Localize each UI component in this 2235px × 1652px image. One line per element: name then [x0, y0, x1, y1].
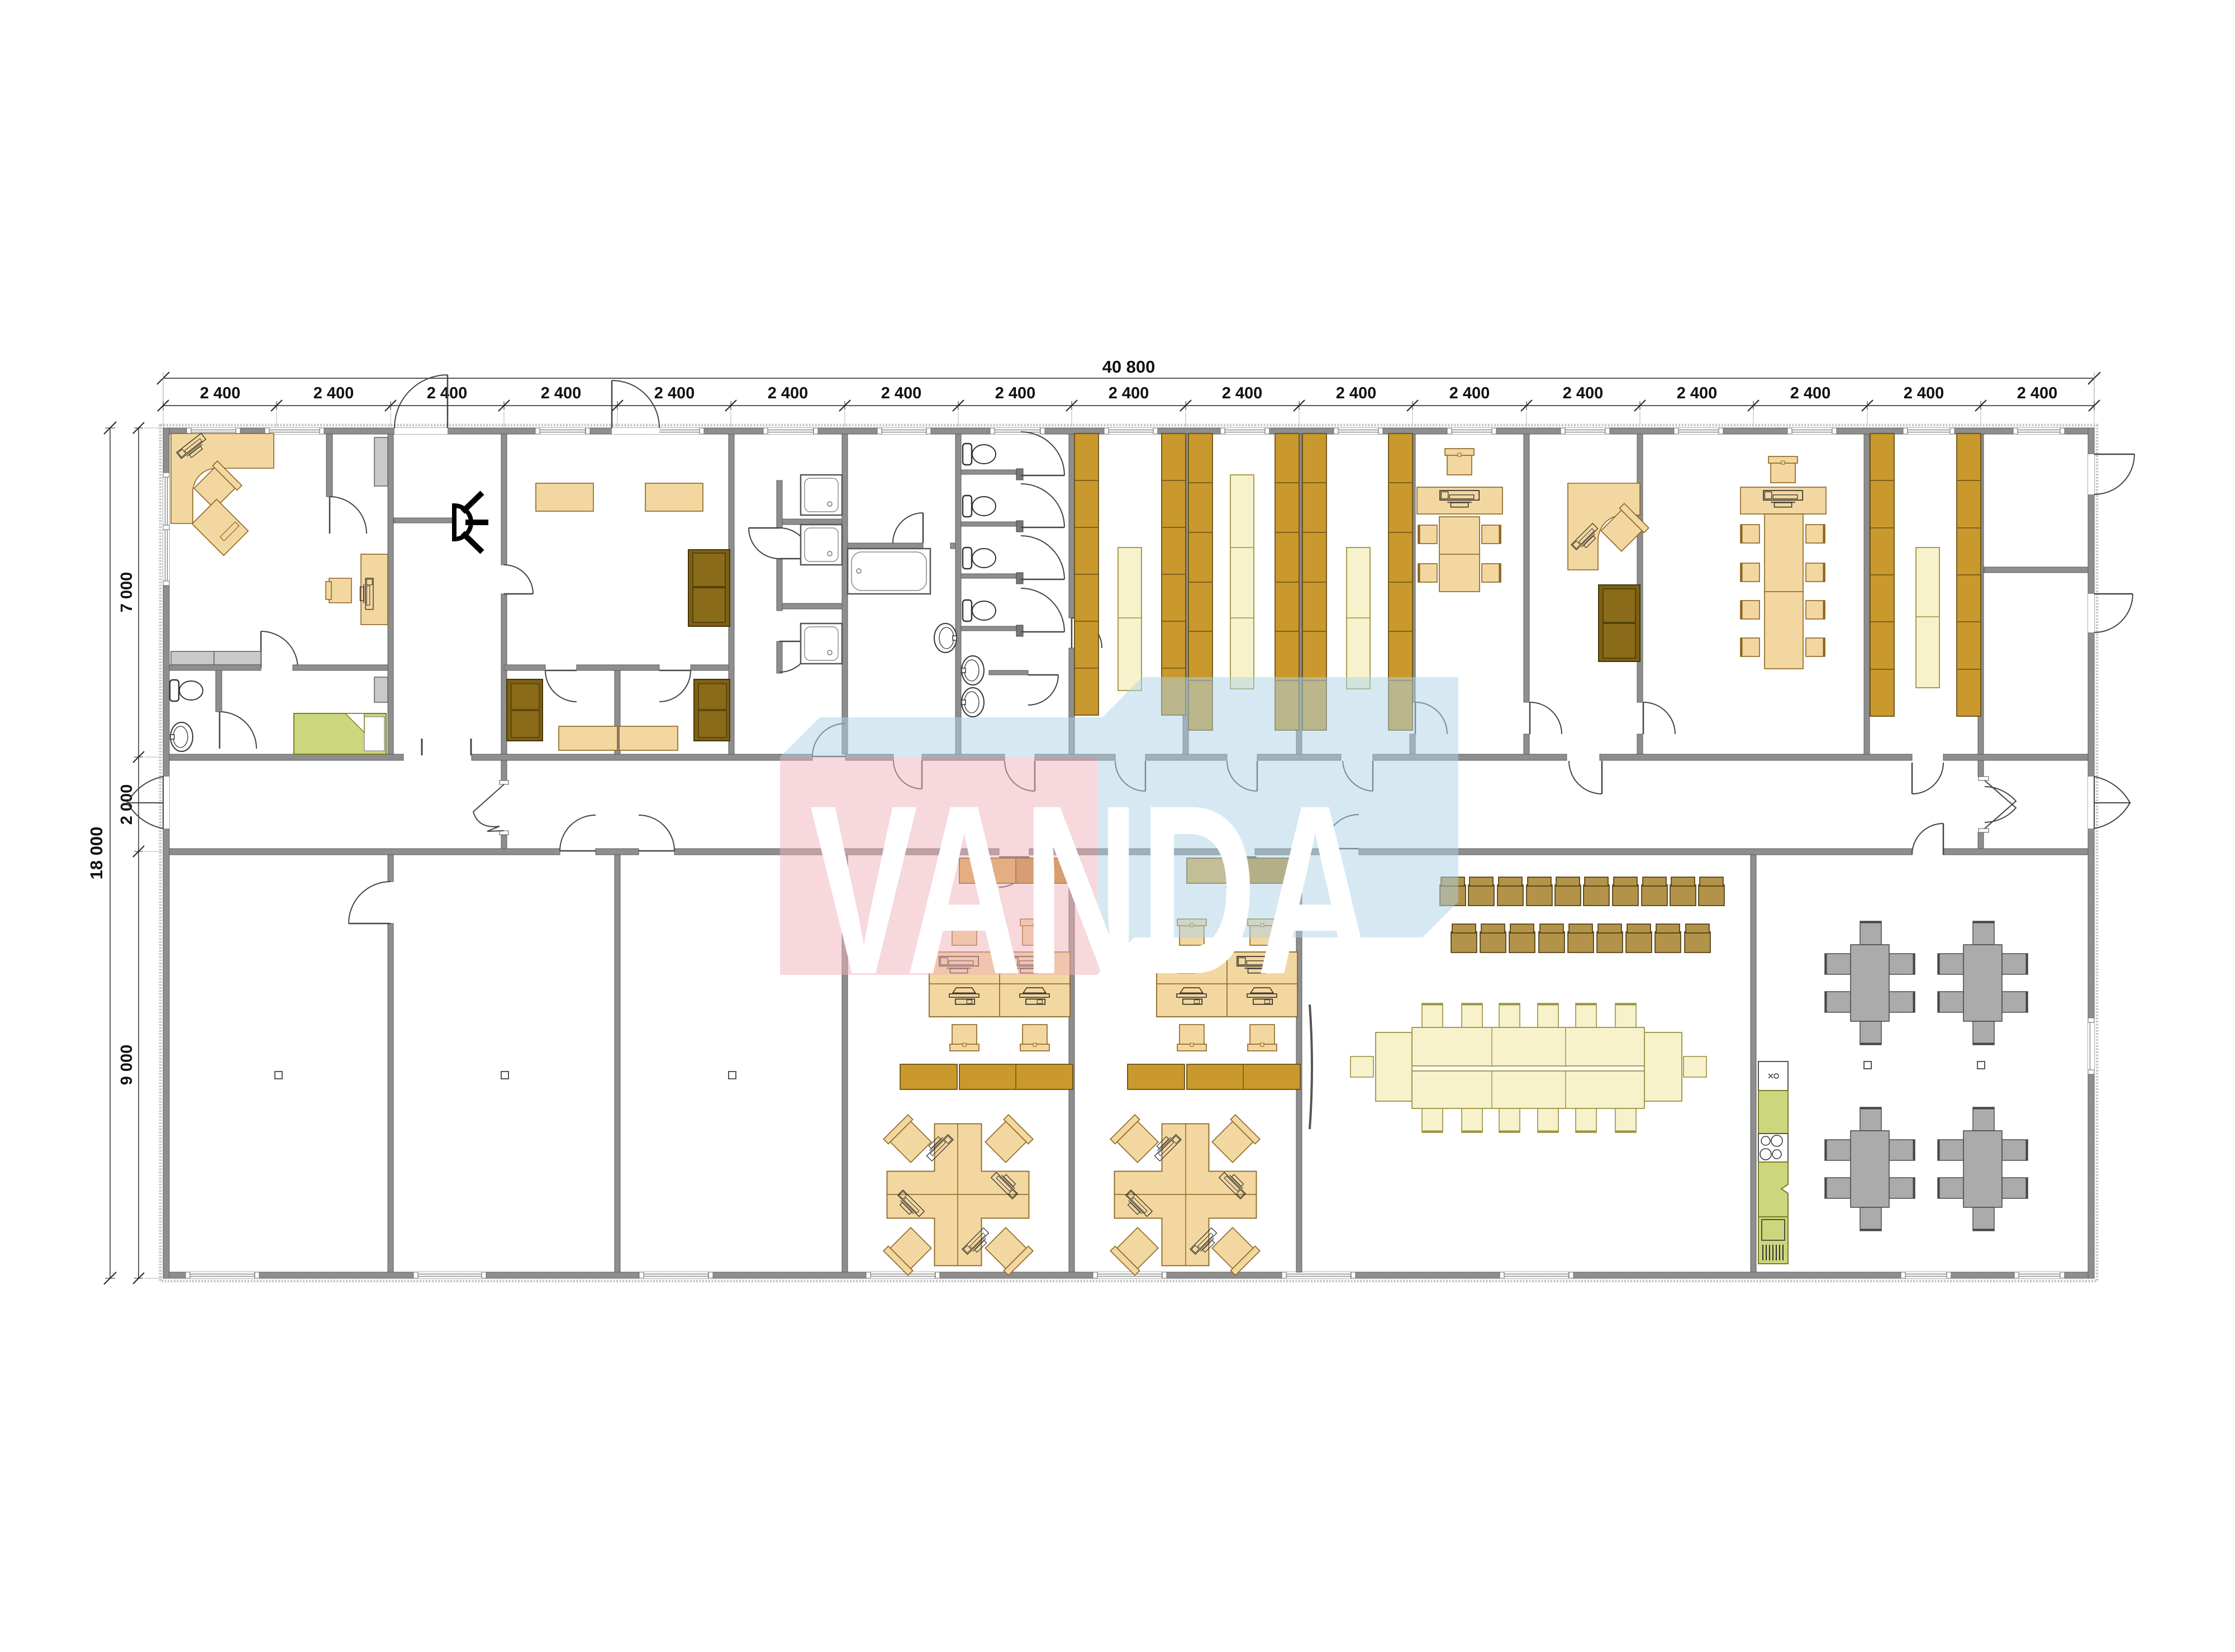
svg-text:2 400: 2 400	[1109, 384, 1149, 402]
svg-text:2 400: 2 400	[1449, 384, 1490, 402]
svg-text:2 400: 2 400	[2017, 384, 2058, 402]
svg-text:2 400: 2 400	[995, 384, 1036, 402]
svg-text:9 000: 9 000	[118, 1045, 136, 1086]
svg-text:7 000: 7 000	[118, 572, 136, 613]
svg-text:2 400: 2 400	[654, 384, 695, 402]
svg-text:2 000: 2 000	[118, 784, 136, 825]
svg-text:2 400: 2 400	[1222, 384, 1263, 402]
svg-text:18 000: 18 000	[87, 827, 106, 880]
svg-text:2 400: 2 400	[768, 384, 809, 402]
svg-text:VANDA: VANDA	[810, 755, 1374, 1025]
svg-text:2 400: 2 400	[1790, 384, 1831, 402]
svg-text:2 400: 2 400	[1904, 384, 1944, 402]
svg-text:2 400: 2 400	[881, 384, 922, 402]
svg-text:2 400: 2 400	[1563, 384, 1604, 402]
svg-text:2 400: 2 400	[313, 384, 354, 402]
svg-text:40 800: 40 800	[1102, 357, 1155, 377]
svg-text:2 400: 2 400	[1336, 384, 1377, 402]
svg-text:2 400: 2 400	[541, 384, 582, 402]
svg-text:2 400: 2 400	[200, 384, 241, 402]
svg-text:2 400: 2 400	[1677, 384, 1718, 402]
